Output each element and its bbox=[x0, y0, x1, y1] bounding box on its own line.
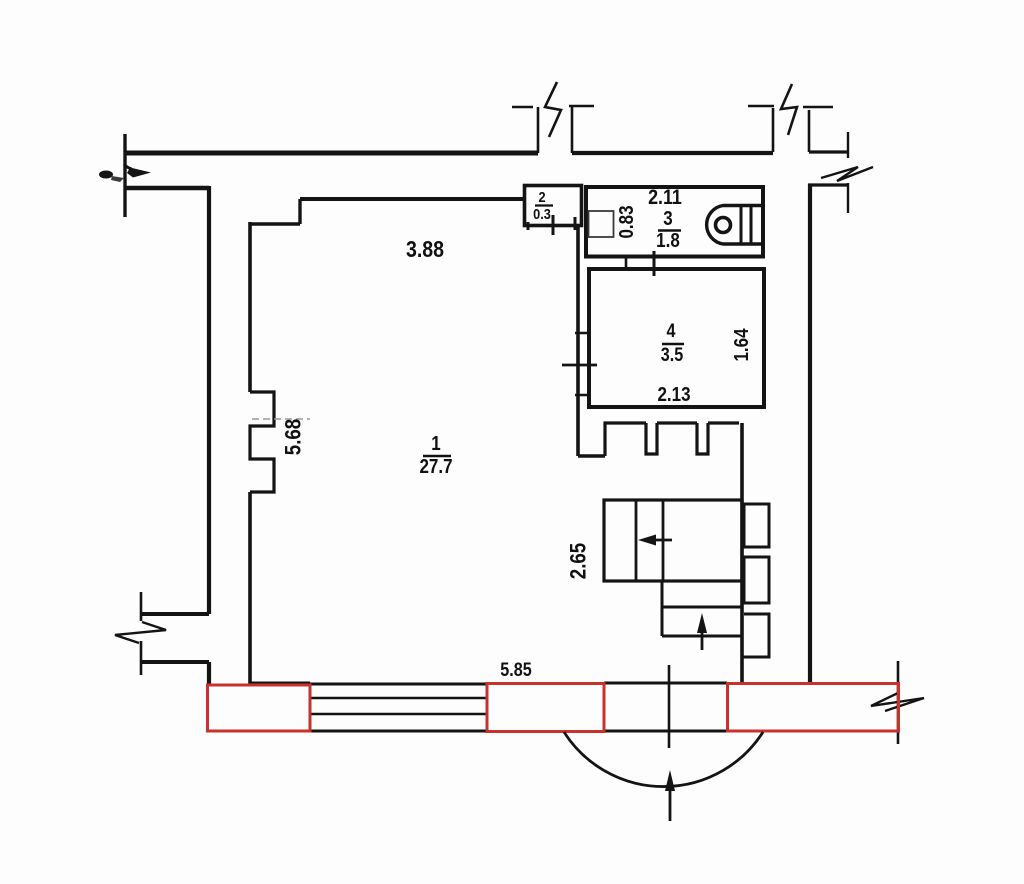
svg-text:0.83: 0.83 bbox=[615, 205, 638, 238]
svg-text:1.64: 1.64 bbox=[730, 328, 753, 362]
svg-text:2.65: 2.65 bbox=[567, 543, 591, 579]
svg-text:1.8: 1.8 bbox=[656, 229, 680, 252]
svg-text:3: 3 bbox=[663, 207, 672, 230]
svg-text:3.88: 3.88 bbox=[406, 237, 444, 263]
svg-text:2.13: 2.13 bbox=[657, 383, 690, 406]
svg-text:3.5: 3.5 bbox=[661, 344, 684, 366]
svg-text:4: 4 bbox=[667, 320, 676, 342]
svg-text:5.68: 5.68 bbox=[282, 419, 306, 455]
svg-text:1: 1 bbox=[431, 432, 440, 455]
svg-text:0.3: 0.3 bbox=[533, 205, 551, 222]
svg-text:5.85: 5.85 bbox=[500, 659, 532, 681]
svg-text:27.7: 27.7 bbox=[419, 455, 452, 478]
svg-text:2: 2 bbox=[538, 188, 545, 205]
